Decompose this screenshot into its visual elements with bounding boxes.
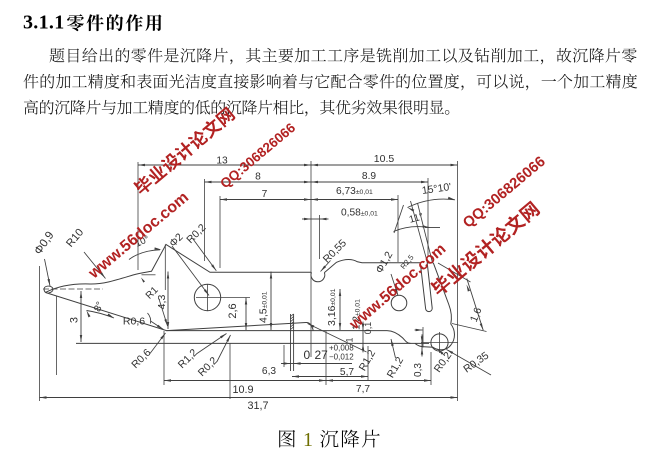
- svg-text:7,7: 7,7: [356, 384, 370, 395]
- svg-text:R0,6: R0,6: [129, 347, 153, 371]
- svg-text:R10: R10: [64, 226, 86, 249]
- svg-text:+0,008: +0,008: [329, 344, 354, 353]
- svg-text:0,58±0,01: 0,58±0,01: [341, 208, 378, 219]
- svg-text:10.9: 10.9: [232, 384, 253, 396]
- svg-text:R0,2: R0,2: [196, 355, 220, 379]
- svg-text:8.9: 8.9: [362, 171, 376, 182]
- svg-text:R0,35: R0,35: [461, 350, 491, 376]
- svg-text:R1,2: R1,2: [385, 355, 407, 380]
- svg-text:0,3: 0,3: [413, 363, 424, 377]
- svg-text:10.5: 10.5: [374, 153, 395, 165]
- svg-text:R1,2: R1,2: [357, 348, 379, 373]
- svg-text:−0,012: −0,012: [329, 353, 354, 362]
- svg-text:3: 3: [69, 317, 81, 323]
- svg-text:6,73±0,01: 6,73±0,01: [336, 186, 373, 197]
- svg-text:3,16±0,01: 3,16±0,01: [326, 288, 338, 326]
- svg-text:QQ:306826066: QQ:306826066: [460, 154, 548, 232]
- svg-text:3.1.1: 3.1.1: [23, 12, 65, 34]
- svg-text:R0,55: R0,55: [321, 237, 349, 265]
- svg-text:R0,6: R0,6: [123, 316, 145, 328]
- svg-text:4,5±0,01: 4,5±0,01: [258, 291, 270, 323]
- svg-text:0: 0: [304, 348, 311, 362]
- svg-text:Φ0,9: Φ0,9: [32, 230, 56, 258]
- svg-text:R0,2: R0,2: [184, 222, 208, 246]
- svg-text:R1,2: R1,2: [176, 347, 200, 371]
- svg-text:5,7: 5,7: [340, 367, 354, 378]
- svg-text:1,6: 1,6: [468, 306, 485, 324]
- svg-text:6,3: 6,3: [262, 366, 276, 377]
- svg-text:1: 1: [303, 429, 313, 451]
- svg-text:2,6: 2,6: [227, 303, 239, 318]
- svg-text:31,7: 31,7: [247, 400, 268, 412]
- svg-text:27: 27: [315, 348, 329, 362]
- svg-text:13: 13: [216, 156, 228, 167]
- svg-text:R0,2: R0,2: [432, 350, 455, 375]
- svg-text:15°10': 15°10': [421, 181, 452, 197]
- svg-text:7: 7: [262, 189, 268, 200]
- svg-text:4,3: 4,3: [156, 295, 168, 310]
- svg-text:8: 8: [255, 172, 261, 183]
